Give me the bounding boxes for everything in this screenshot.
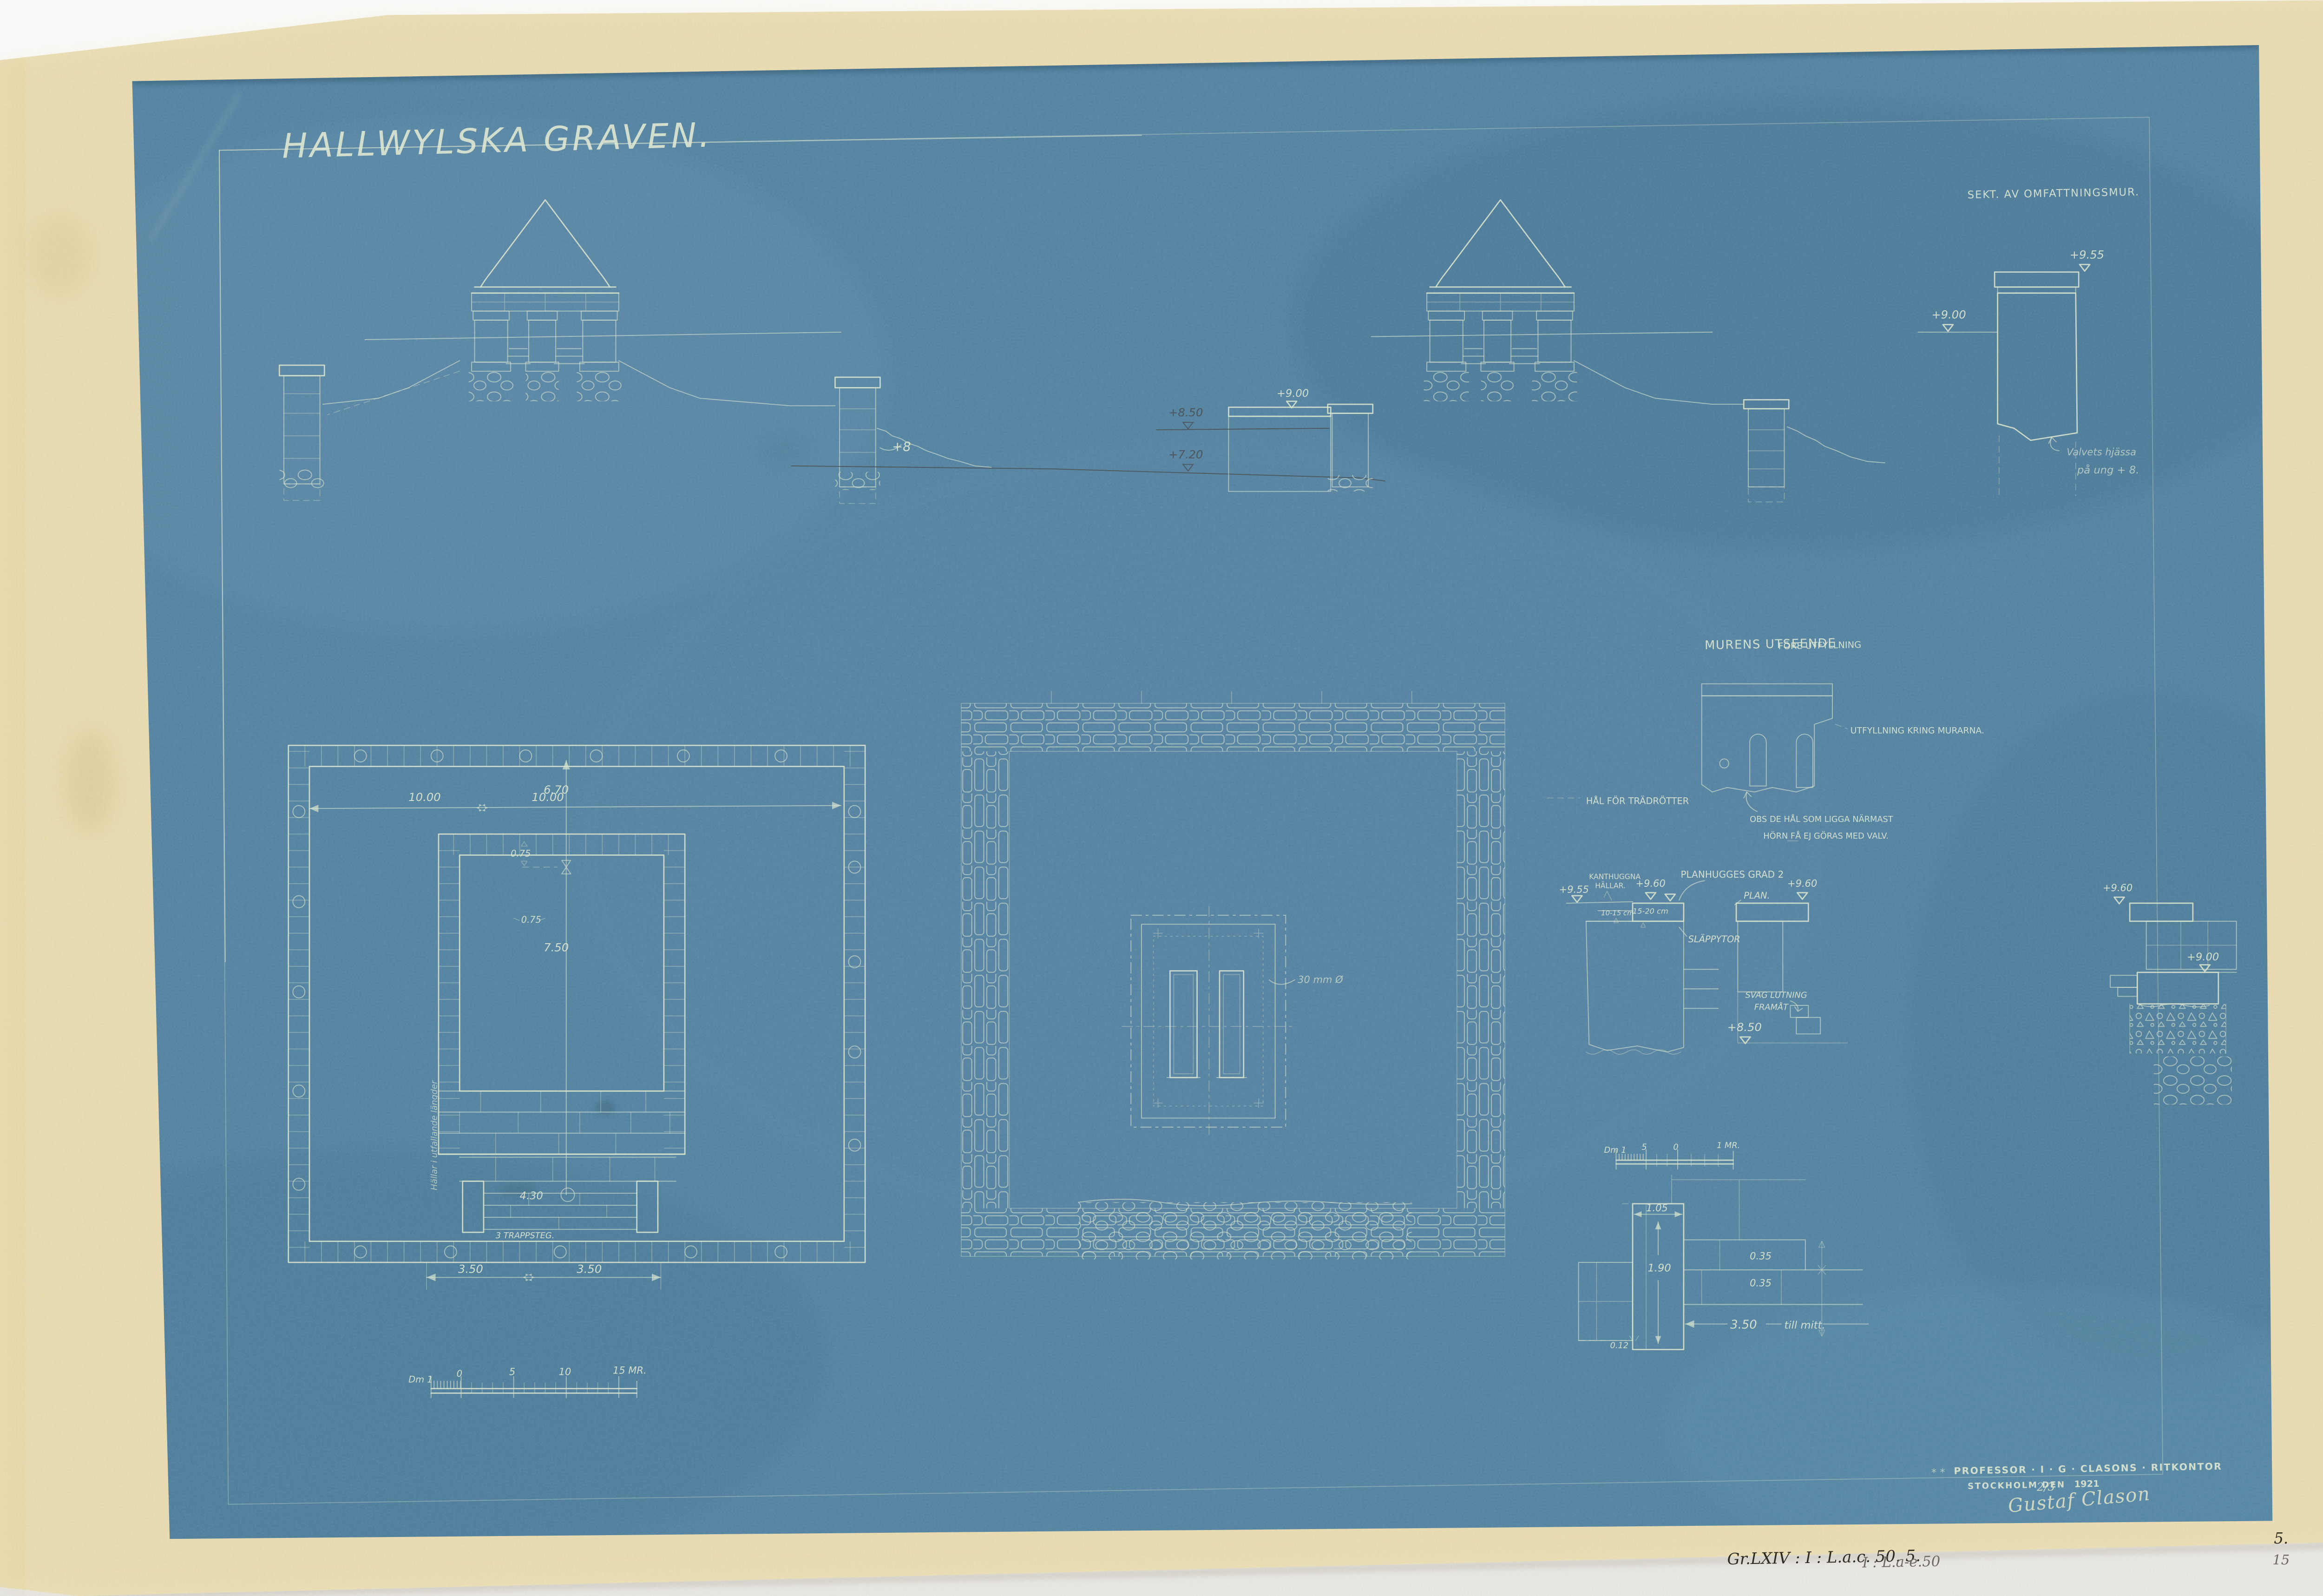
detail-plan-label: PLAN. <box>1744 890 1770 901</box>
scale-main-l4: 15 MR. <box>613 1364 647 1376</box>
detail-kerb-dim-course-b: 0.35 <box>1750 1277 1772 1289</box>
scale-detail-l0: Dm 1 <box>1604 1145 1627 1155</box>
detail-slabs-label-a1: KANTHUGGNA <box>1589 873 1641 881</box>
sheet-number-ink: 5. <box>2274 1530 2288 1547</box>
scale-main-l0: Dm 1 <box>408 1374 433 1385</box>
detail-slabs-dim-a: 10-15 cm <box>1601 909 1634 917</box>
detail-kerb-dim-offset: 0.12 <box>1610 1340 1629 1350</box>
plan-left-dim-step-b: 3.50 <box>577 1262 602 1276</box>
elevation-right-wall-level: +9.00 <box>1277 388 1309 400</box>
plan-left-steps-label: 3 TRAPPSTEG. <box>496 1231 554 1241</box>
wall-section-level-top: +9.55 <box>2070 248 2104 261</box>
detail-slabs-level-a: +9.55 <box>1559 883 1589 895</box>
scale-detail-l2: 0 <box>1673 1142 1678 1152</box>
photographed-blueprint: HALLWYLSKA GRAVEN. <box>0 0 2323 1596</box>
detail-kerb-dim-height: 1.90 <box>1647 1262 1671 1274</box>
detail-kerb-dim-course-a: 0.35 <box>1750 1250 1772 1261</box>
elevation-left-level-label: +8 <box>892 439 911 454</box>
wall-section-note-1: Valvets hjässa <box>2067 446 2136 458</box>
elevation-right-pencil-upper: +8.50 <box>1168 406 1203 419</box>
stamp-marks: * * <box>1931 1466 1945 1479</box>
plan-center-bore-note: 30 mm Ø <box>1298 973 1343 985</box>
sheet-number-pencil: 15 <box>2272 1552 2290 1568</box>
detail-slabs-face-label: SLÄPPYTOR <box>1688 934 1740 945</box>
plan-left-dim-width-a: 10.00 <box>408 790 440 804</box>
elevation-right-pencil-lower: +7.20 <box>1168 448 1203 461</box>
plan-left-dim-wall-b: 0.75 <box>521 914 541 925</box>
detail-plan-slope-1: SVAG LUTNING <box>1745 991 1807 1000</box>
wall-section-level-mid: +9.00 <box>1931 308 1966 322</box>
plan-left-wall-note: Hällar i utfallande längder <box>430 1080 440 1190</box>
scale-detail-l3: 1 MR. <box>1717 1141 1740 1150</box>
scale-detail-l1: 5 <box>1641 1142 1647 1152</box>
plan-left-dim-b: 7.50 <box>544 940 569 954</box>
wall-study-holes-label: HÅL FÖR TRÄDRÖTTER <box>1586 795 1689 806</box>
wall-section-note-2: på ung + 8. <box>2077 463 2139 476</box>
detail-kerb-dim-span: 3.50 <box>1730 1318 1757 1332</box>
wall-study-fill-label: UTFYLLNING KRING MURARNA. <box>1851 726 1984 736</box>
detail-corner-level-top: +9.60 <box>2103 882 2133 893</box>
detail-kerb-span-note: till mitt. <box>1785 1319 1825 1331</box>
detail-plan-level-top: +9.60 <box>1787 877 1817 889</box>
archive-reference-pencil: I : L.a-e.50 <box>1862 1553 1940 1571</box>
detail-slabs-level-b: +9.60 <box>1635 877 1665 889</box>
detail-kerb-dim-width: 1.05 <box>1646 1202 1668 1214</box>
detail-slabs-label-a2: HÄLLAR. <box>1595 881 1626 890</box>
wall-study-note-1: OBS DE HÅL SOM LIGGA NÄRMAST <box>1750 814 1893 824</box>
wall-study-subtitle: FÖRE UTFYLLNING <box>1778 639 1861 651</box>
plan-left-dim-a: 6.70 <box>544 783 569 796</box>
detail-plan-level-low: +8.50 <box>1727 1020 1762 1034</box>
scale-main-l1: 0 <box>457 1368 462 1379</box>
plan-left-dim-c: 4.30 <box>520 1190 543 1202</box>
blueprint-sheet <box>0 45 2323 1570</box>
blueprint-canvas: HALLWYLSKA GRAVEN. <box>0 0 2323 1596</box>
detail-slabs-dim-b: 15-20 cm <box>1633 907 1668 916</box>
scale-main-l2: 5 <box>509 1366 515 1378</box>
scale-main-l3: 10 <box>559 1366 571 1378</box>
plan-left-dim-step-a: 3.50 <box>458 1262 483 1276</box>
detail-corner-level-mid: +9.00 <box>2187 951 2219 963</box>
detail-plan-slope-2: FRAMÅT <box>1754 1002 1789 1012</box>
wall-study-note-2: HÖRN FÅ EJ GÖRAS MED VALV. <box>1763 831 1889 841</box>
detail-slabs-title: PLANHUGGES GRAD 2 <box>1680 869 1784 880</box>
plan-left-dim-wall-a: 0.75 <box>511 848 531 859</box>
